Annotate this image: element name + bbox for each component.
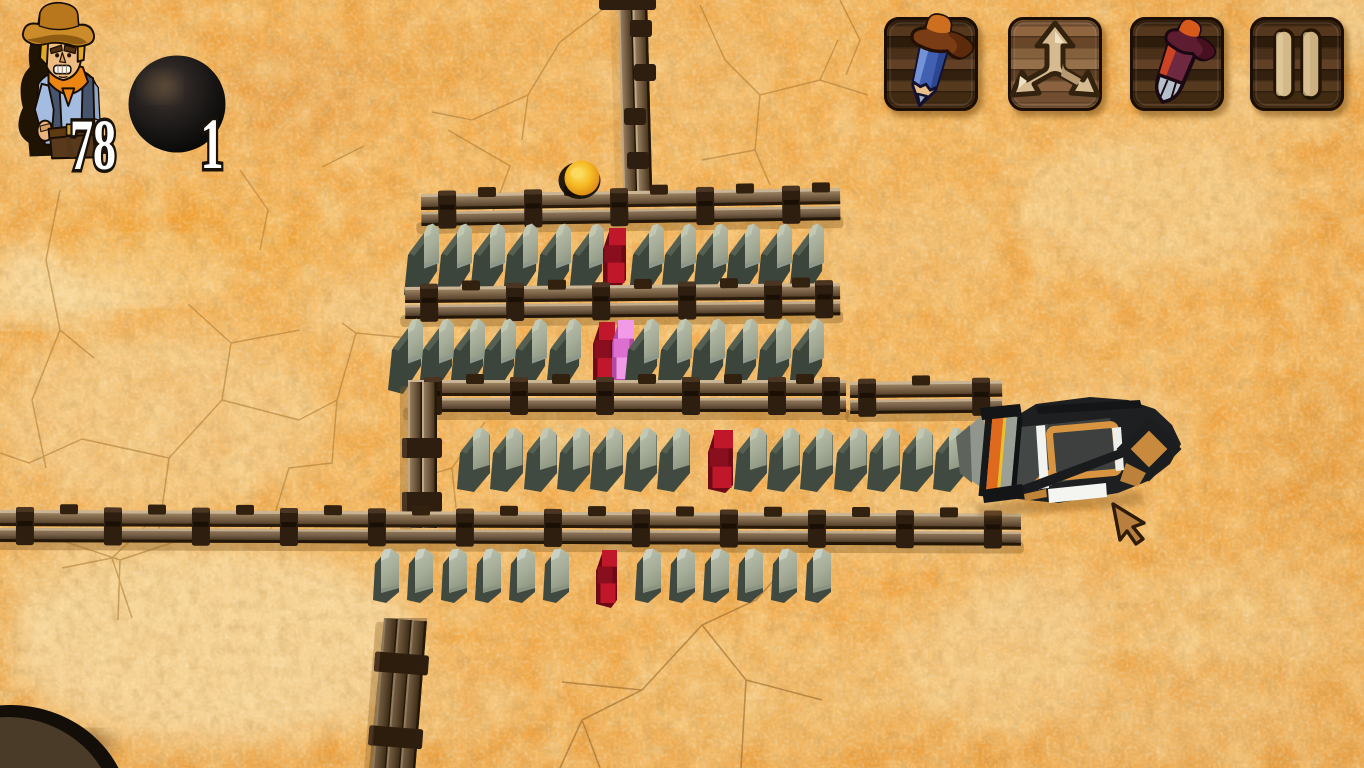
svg-text:1: 1 — [200, 105, 223, 185]
svg-text:78: 78 — [70, 106, 116, 186]
